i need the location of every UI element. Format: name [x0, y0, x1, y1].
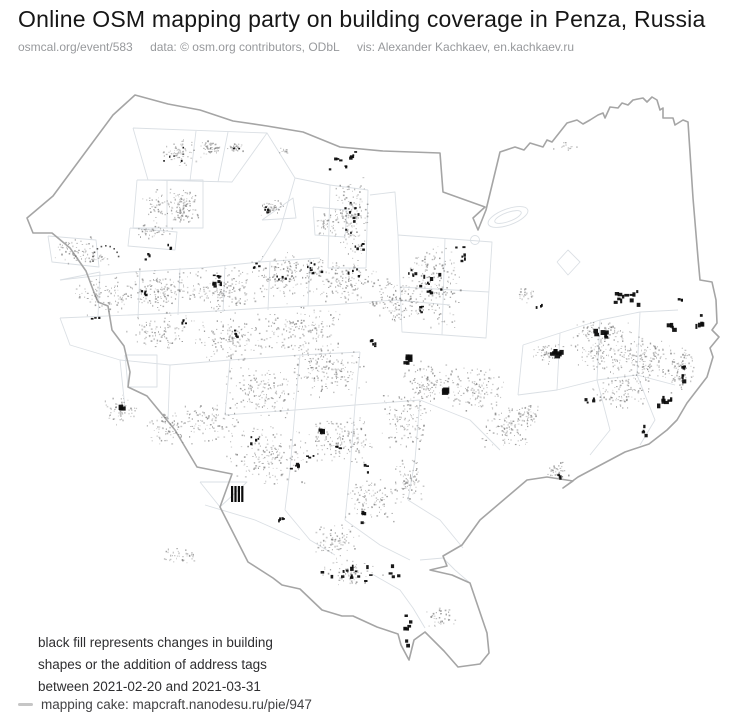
meta-event-url: osmcal.org/event/583 [18, 40, 133, 54]
arc-buildings-group [92, 245, 119, 262]
legend: mapping cake: mapcraft.nanodesu.ru/pie/9… [18, 697, 312, 712]
meta-data-credit: data: © osm.org contributors, ODbL [150, 40, 340, 54]
cake-line-swatch [18, 703, 33, 706]
note-line-2: shapes or the addition of address tags [38, 654, 273, 676]
meta-line: osmcal.org/event/583 data: © osm.org con… [18, 40, 705, 54]
note-line-1: black fill represents changes in buildin… [38, 632, 273, 654]
meta-vis-credit: vis: Alexander Kachkaev, en.kachkaev.ru [357, 40, 574, 54]
visualization-page: Online OSM mapping party on building cov… [0, 0, 750, 728]
header: Online OSM mapping party on building cov… [18, 6, 705, 54]
bar-buildings-group [231, 486, 243, 502]
map-canvas [0, 0, 750, 728]
map-note: black fill represents changes in buildin… [38, 632, 273, 698]
existing-buildings-layer [55, 139, 694, 627]
cake-cells-layer [48, 128, 678, 628]
legend-cake-label: mapping cake: mapcraft.nanodesu.ru/pie/9… [41, 697, 312, 712]
note-line-3: between 2021-02-20 and 2021-03-31 [38, 676, 273, 698]
page-title: Online OSM mapping party on building cov… [18, 6, 705, 33]
